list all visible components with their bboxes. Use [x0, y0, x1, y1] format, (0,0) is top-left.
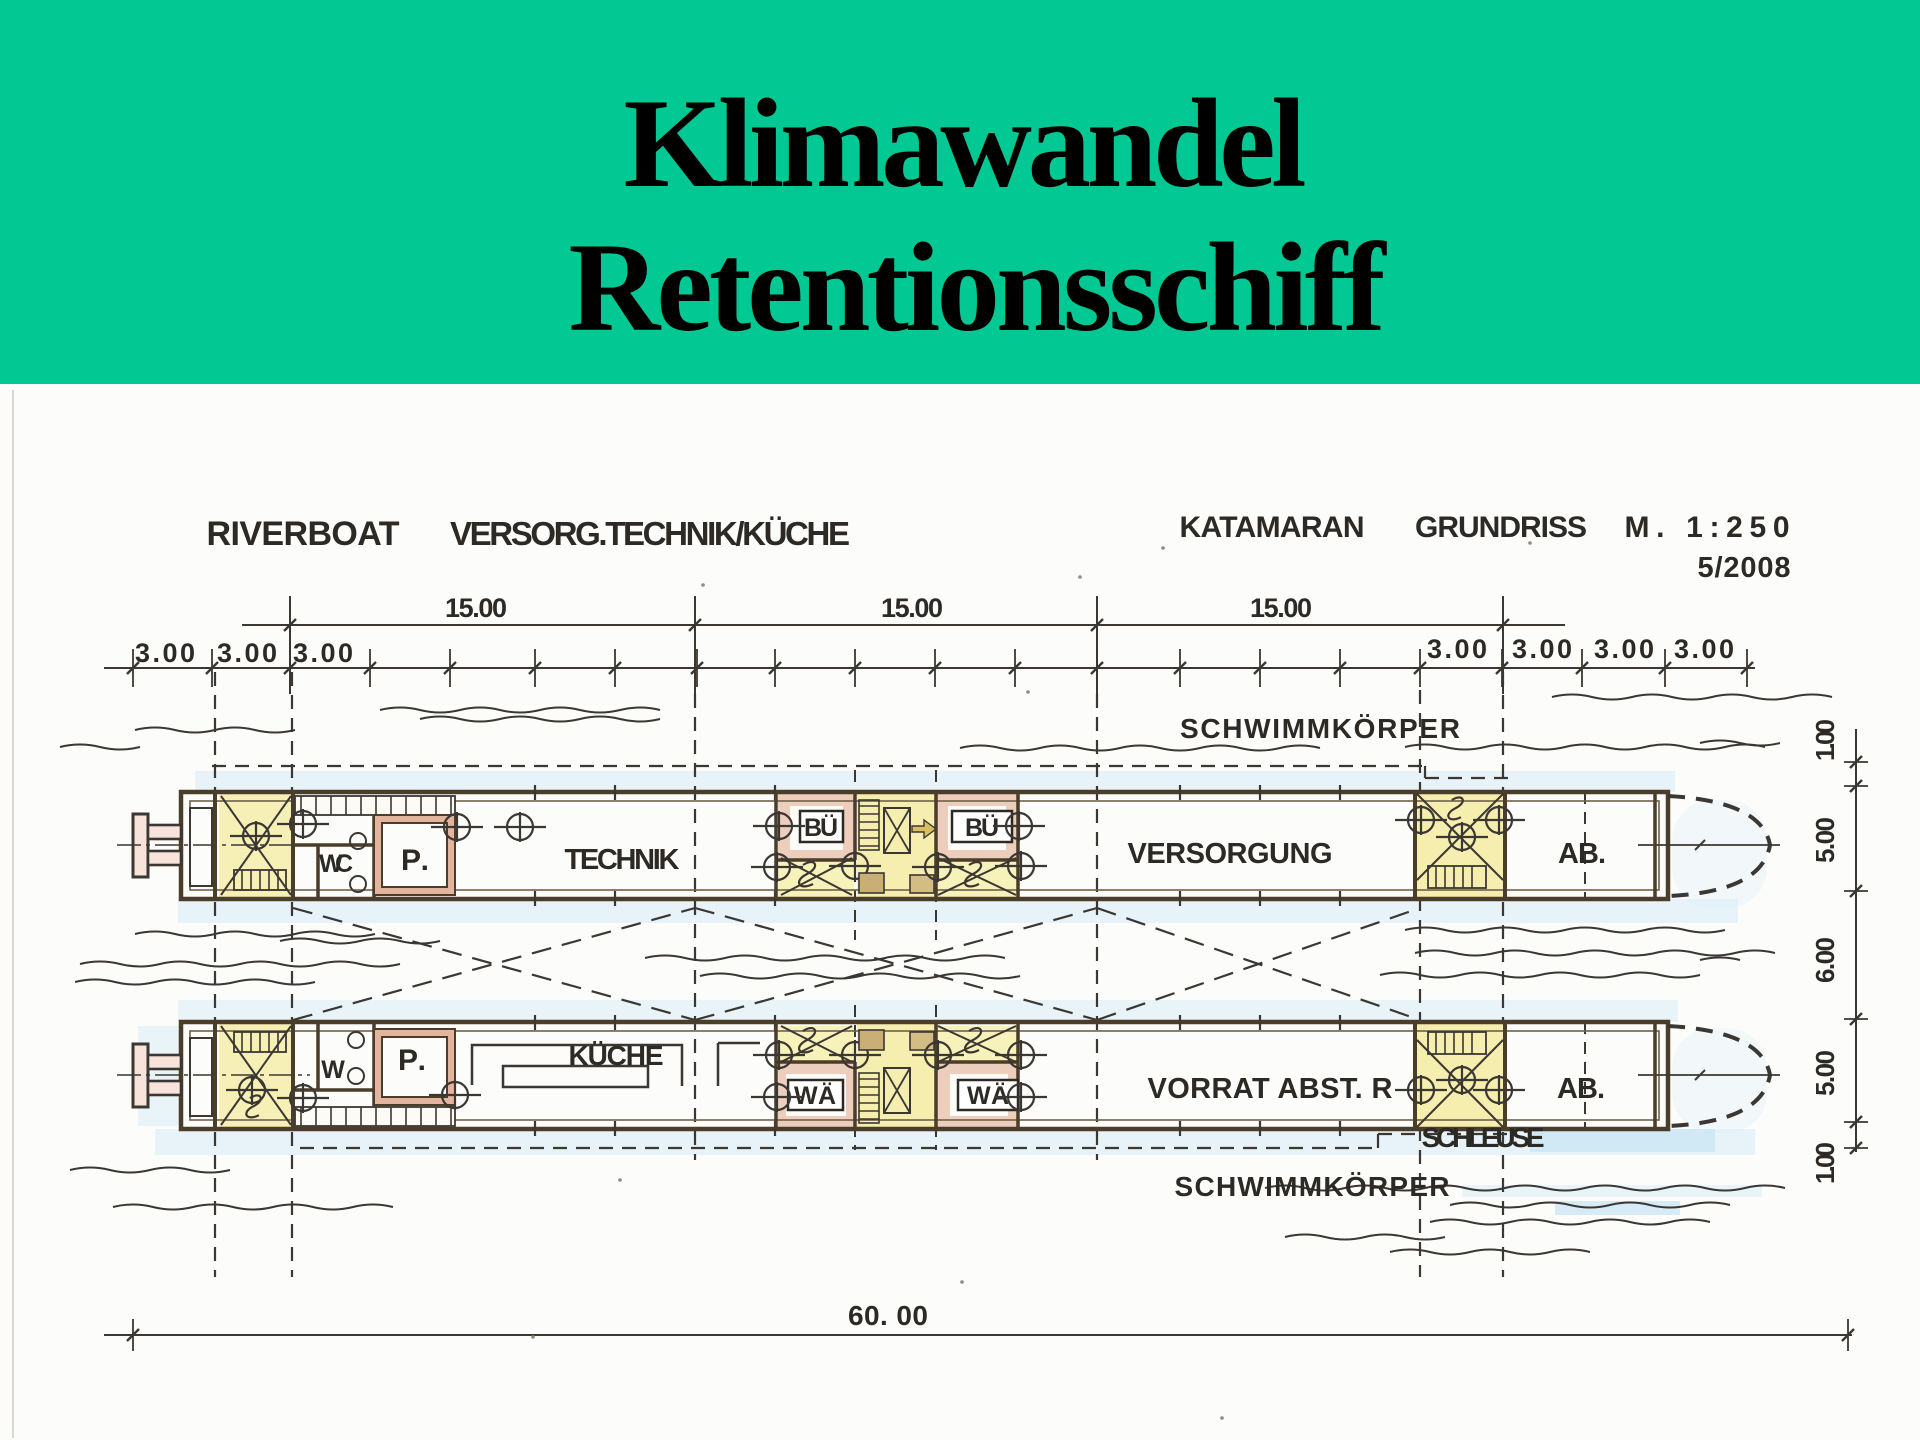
svg-text:RIVERBOAT: RIVERBOAT [207, 515, 400, 553]
svg-text:TECHNIK: TECHNIK [565, 844, 680, 876]
svg-text:3.00: 3.00 [1512, 634, 1572, 664]
svg-text:60. 00: 60. 00 [848, 1300, 928, 1331]
svg-text:3.00: 3.00 [1674, 634, 1734, 664]
svg-text:WC: WC [319, 850, 353, 878]
svg-text:1.00: 1.00 [1810, 1142, 1840, 1184]
svg-text:GRUNDRISS: GRUNDRISS [1415, 511, 1587, 544]
svg-text:AB.: AB. [1558, 838, 1606, 870]
svg-text:15.00: 15.00 [881, 593, 943, 623]
svg-text:VERSORG.TECHNIK/KÜCHE: VERSORG.TECHNIK/KÜCHE [450, 515, 850, 552]
svg-text:BÜ: BÜ [965, 813, 999, 842]
svg-text:5.00: 5.00 [1810, 1050, 1840, 1096]
svg-text:Retentionsschiff: Retentionsschiff [569, 218, 1388, 358]
svg-text:BÜ: BÜ [804, 813, 838, 842]
svg-text:KATAMARAN: KATAMARAN [1180, 511, 1365, 544]
svg-text:W: W [321, 1056, 345, 1084]
svg-text:3.00: 3.00 [217, 638, 277, 668]
svg-text:15.00: 15.00 [1250, 593, 1312, 623]
svg-text:5/2008: 5/2008 [1698, 552, 1791, 584]
svg-text:KÜCHE: KÜCHE [569, 1040, 664, 1071]
svg-text:P.: P. [401, 844, 429, 877]
svg-text:15.00: 15.00 [445, 593, 507, 623]
svg-text:5.00: 5.00 [1810, 817, 1840, 863]
svg-text:P.: P. [398, 1044, 426, 1077]
svg-text:3.00: 3.00 [1427, 634, 1487, 664]
svg-text:SCHLEUSE: SCHLEUSE [1422, 1122, 1545, 1153]
svg-text:AB.: AB. [1557, 1073, 1605, 1105]
svg-text:Klimawandel: Klimawandel [624, 74, 1307, 214]
svg-text:VERSORGUNG: VERSORGUNG [1128, 838, 1333, 870]
svg-text:6.00: 6.00 [1810, 937, 1840, 983]
svg-text:VORRAT ABST. R: VORRAT ABST. R [1148, 1073, 1393, 1105]
svg-text:3.00: 3.00 [293, 638, 353, 668]
svg-text:3.00: 3.00 [135, 638, 195, 668]
svg-text:1.00: 1.00 [1810, 719, 1840, 761]
svg-text:3.00: 3.00 [1594, 634, 1654, 664]
